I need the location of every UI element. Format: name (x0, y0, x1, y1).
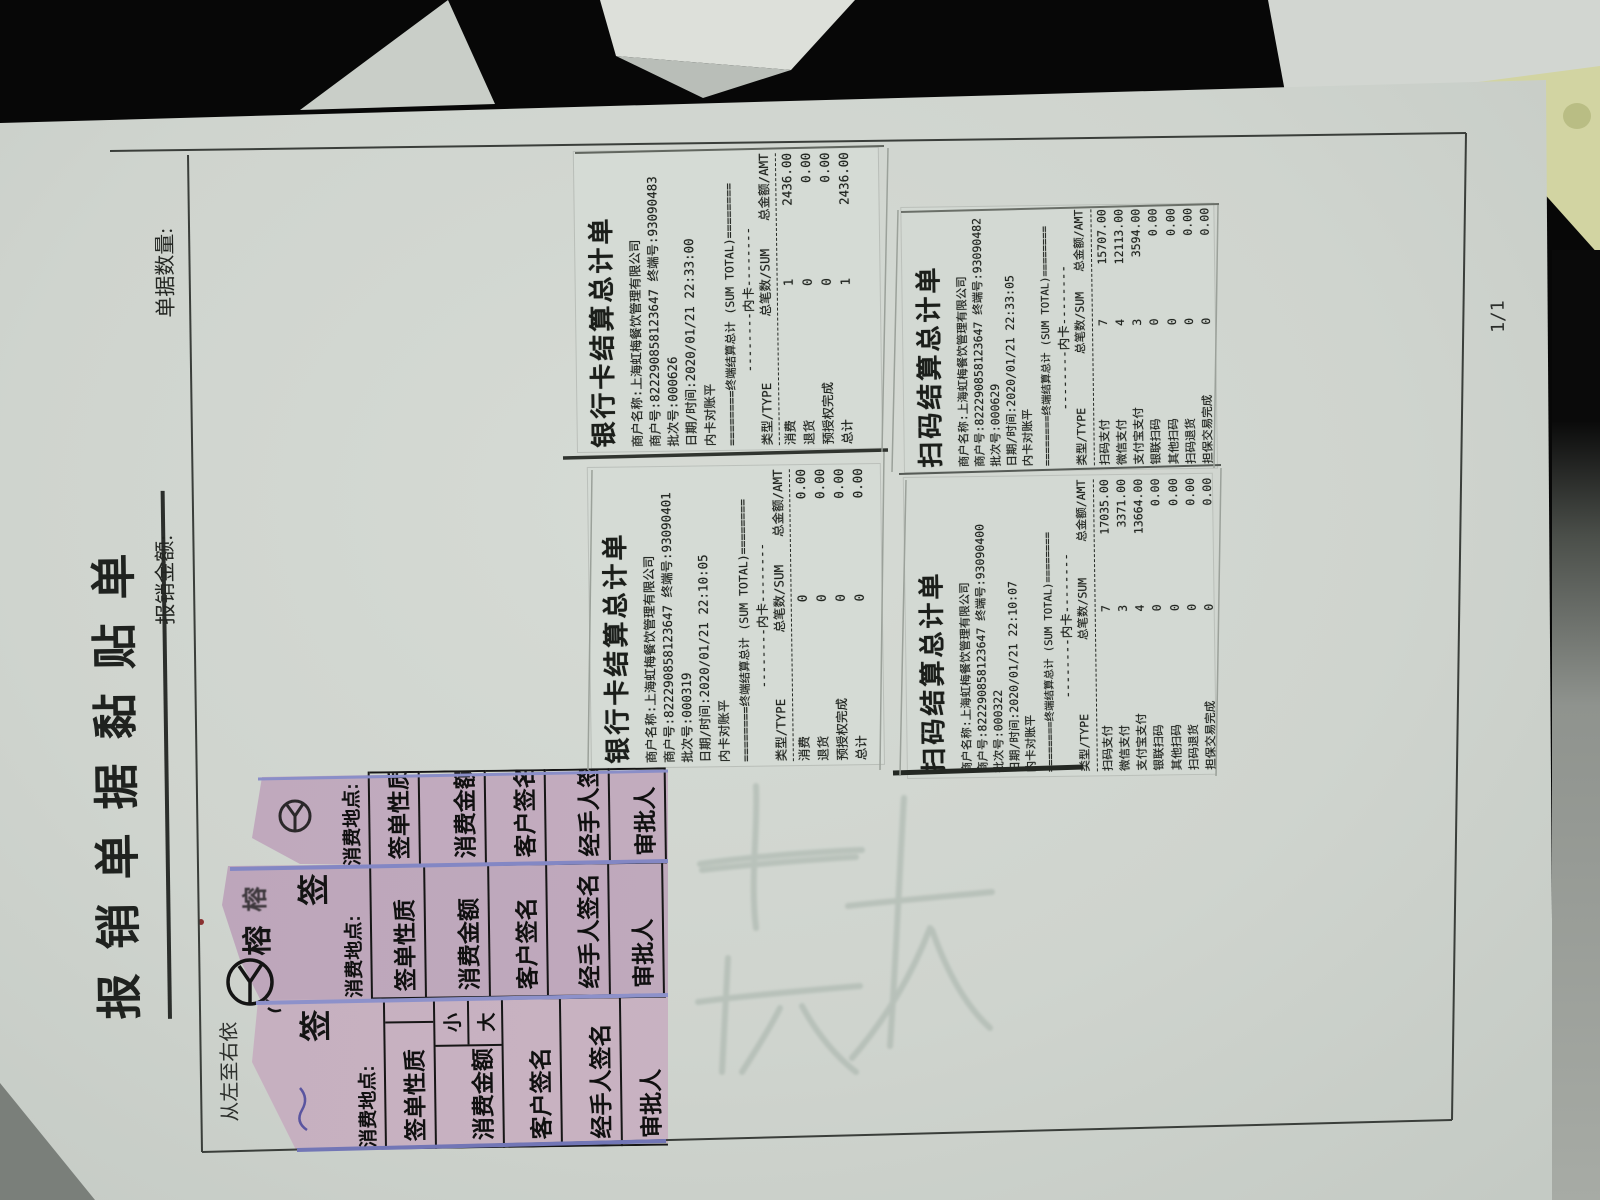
cream-sheet-stain (1563, 103, 1591, 129)
receipt-table-cell: 0.00 (1197, 208, 1215, 289)
receipt-bank-card-2: 银行卡结算总计单 商户名称:上海虹梅餐饮管理有限公司 商户号:822290858… (588, 464, 884, 768)
receipt-table-cell: 担保交易完成 (1201, 644, 1216, 770)
col-type: 类型/TYPE (771, 636, 792, 762)
receipt-table-cell: 3371.00 (1113, 479, 1132, 572)
receipt-table-cell: 0 (850, 561, 870, 635)
receipt-table-cell: 0 (1166, 571, 1184, 645)
receipt-title: 银行卡结算总计单 (594, 471, 635, 763)
pink-slip-table-2: 消费地点: 签单性质 消费金额 客户签名 经手人签名 审批人 (336, 861, 668, 1000)
slip-title-char: 签 (290, 1002, 327, 1042)
col-amount: 总金额/AMT (768, 469, 788, 562)
field-handler-signature: 经手人签名 (579, 998, 621, 1145)
receipt-table-cell: 0.00 (830, 468, 850, 561)
field-handler-signature: 经手人签名 (567, 864, 609, 995)
status-line: 内卡对账平 (697, 154, 719, 446)
receipt-table-cell: 扫码退货 (1181, 354, 1200, 464)
receipt-table-cell: 0.00 (816, 152, 836, 245)
receipt-table-cell: 担保交易完成 (1199, 353, 1217, 463)
receipt-table: 消费00.00退货00.00预授权完成00.00总计00.00 (792, 468, 871, 761)
slip-title-char: 签 (288, 866, 323, 906)
receipt-table-cell: 0 (831, 561, 851, 635)
field-approver: 审批人 (624, 769, 665, 862)
amount-subcells: 小 大 (435, 1000, 502, 1047)
receipt-table-cell: 7 (1097, 572, 1115, 646)
receipt-table-cell: 扫码支付 (1098, 645, 1117, 771)
receipt-table-cell: 2436.00 (778, 153, 798, 246)
slip-fields: 签单性质 消费金额 小 大 客户签名 经手人签名 审批人 (383, 996, 668, 1150)
field-customer-signature: 客户签名 (519, 999, 561, 1146)
pink-slip-table-3: 消费地点: 签单性质 消费金额 小 大 客户签名 经手人签名 审批人 (350, 996, 668, 1150)
receipt-table-cell: 0.00 (1179, 208, 1197, 289)
receipt-table-cell: 总计 (851, 634, 872, 760)
receipt-table-row: 总计00.00 (848, 468, 871, 760)
receipt-table-cell: 微信支付 (1112, 355, 1131, 465)
receipt-table-cell: 0.00 (1145, 208, 1163, 289)
receipt-qr-2: 扫码结算总计单 商户名称:上海虹梅餐饮管理有限公司 商户号:8222908581… (904, 474, 1216, 778)
receipt-table: 扫码支付717035.00微信支付33371.00支付宝支付413664.00银… (1096, 477, 1216, 771)
receipt-table-cell: 13664.00 (1130, 479, 1149, 572)
receipt-table-cell: 微信支付 (1115, 645, 1134, 771)
receipt-table-cell: 退货 (813, 635, 834, 761)
receipt-table-cell: 0.00 (1165, 478, 1184, 571)
receipt-table-cell: 3 (1114, 571, 1132, 645)
receipt-table-cell: 其他扫码 (1164, 354, 1183, 464)
receipt-bank-card-1: 银行卡结算总计单 商户名称:上海虹梅餐饮管理有限公司 商户号:822290858… (574, 148, 882, 452)
col-count: 总笔数/SUM (1072, 290, 1090, 355)
receipt-table-cell: 0 (1198, 289, 1216, 354)
location-label: 消费地点: (338, 866, 367, 998)
receipt-table-cell: 7 (1094, 290, 1112, 355)
receipt-table-cell: 消费 (781, 319, 802, 445)
receipt-table-cell: 0.00 (1147, 478, 1166, 571)
receipt-table-cell: 0.00 (1162, 208, 1180, 289)
receipt-table-cell: 0.00 (1182, 478, 1201, 571)
field-sign-type: 签单性质 (393, 1023, 435, 1148)
receipt-table-cell: 1 (780, 245, 800, 319)
table-header: 类型/TYPE 总笔数/SUM 总金额/AMT (768, 469, 791, 761)
field-amount: 消费金额 (444, 772, 485, 865)
slip-brand-char: 榕 (232, 920, 266, 956)
paste-instruction: 从左至右依 (212, 1010, 241, 1122)
receipt-table-cell: 其他扫码 (1167, 644, 1186, 770)
receipt-table-cell: 消费 (795, 635, 816, 761)
field-approver: 审批人 (621, 863, 663, 994)
receipt-table-cell: 3594.00 (1128, 209, 1146, 290)
blank-subcell (385, 1001, 433, 1024)
receipt-table-cell: 退货 (799, 319, 820, 445)
receipt-table-cell: 17035.00 (1096, 479, 1115, 572)
col-amount: 总金额/AMT (1073, 479, 1092, 572)
col-count: 总笔数/SUM (756, 246, 776, 320)
slip-fields: 签单性质 消费金额 客户签名 经手人签名 审批人 (369, 861, 665, 999)
receipt-title: 扫码结算总计单 (907, 211, 948, 467)
receipt-title: 扫码结算总计单 (910, 481, 951, 773)
table-header: 类型/TYPE 总笔数/SUM 总金额/AMT (754, 153, 777, 445)
amount-label: 报销金额: (148, 465, 180, 625)
field-handler-signature: 经手人签名 (568, 770, 609, 863)
receipt-table-cell: 扫码退货 (1184, 644, 1203, 770)
receipt-table-cell: 支付宝支付 (1132, 645, 1151, 771)
receipt-table-cell: 0.00 (792, 469, 812, 562)
receipt-table-cell: 3 (1129, 290, 1147, 355)
col-count: 总笔数/SUM (1075, 572, 1093, 646)
receipt-table-cell: 扫码支付 (1095, 355, 1114, 465)
count-label: 单据数量: (148, 198, 180, 318)
field-approver: 审批人 (629, 998, 668, 1145)
receipt-table-cell: 0 (817, 245, 837, 319)
receipt-table-cell: 0 (798, 245, 818, 319)
receipt-table-cell: 0 (1183, 570, 1201, 644)
receipt-table-cell: 0 (812, 561, 832, 635)
right-edge-shadow (1552, 250, 1600, 1200)
pink-slip-table-1: 消费地点: 签单性质 消费金额 客户签名 经手人签名 审批人 (335, 767, 668, 868)
receipt-table-cell: 0 (1149, 571, 1167, 645)
table-header: 类型/TYPE 总笔数/SUM 总金额/AMT (1073, 479, 1094, 771)
page-indicator: 1/1 (1487, 285, 1512, 333)
receipt-table-cell: 0 (1146, 289, 1164, 354)
status-line: 内卡对账平 (1019, 480, 1039, 772)
col-amount: 总金额/AMT (1071, 209, 1089, 290)
scanned-reimbursement-sheet: 银行卡结算总计单 商户名称:上海虹梅餐饮管理有限公司 商户号:822290858… (0, 0, 1600, 1200)
receipt-table: 扫码支付715707.00微信支付412113.00支付宝支付33594.00银… (1093, 207, 1217, 465)
receipt-table: 消费12436.00退货00.00预授权完成00.00总计12436.00 (778, 152, 857, 445)
col-type: 类型/TYPE (1073, 355, 1092, 465)
receipt-table-cell: 银联扫码 (1147, 354, 1166, 464)
background-paper-triangle (290, 0, 510, 120)
receipt-table-cell: 4 (1131, 571, 1149, 645)
receipt-table-cell: 0 (1180, 289, 1198, 354)
col-amount: 总金额/AMT (754, 153, 774, 246)
receipt-table-cell: 15707.00 (1093, 209, 1111, 290)
location-label: 消费地点: (337, 772, 365, 866)
receipt-table-cell: 支付宝支付 (1130, 354, 1149, 464)
table-header: 类型/TYPE 总笔数/SUM 总金额/AMT (1071, 209, 1092, 465)
field-sign-type: 签单性质 (378, 773, 419, 866)
field-customer-signature: 客户签名 (504, 771, 545, 864)
receipt-table-cell: 0.00 (811, 469, 831, 562)
status-line: 内卡对账平 (711, 470, 733, 762)
receipt-table-row: 总计12436.00 (834, 152, 857, 444)
receipt-table-cell: 0 (794, 561, 814, 635)
col-type: 类型/TYPE (757, 320, 778, 446)
amount-large-cell: 大 (467, 1000, 502, 1044)
slip-fields: 签单性质 消费金额 客户签名 经手人签名 审批人 (368, 767, 667, 867)
slip-brand-char: 榕 (236, 882, 266, 912)
receipt-table-cell: 0 (1163, 289, 1181, 354)
receipt-table-cell: 银联扫码 (1150, 645, 1169, 771)
receipt-table-cell: 预授权完成 (818, 319, 839, 445)
field-customer-signature: 客户签名 (505, 865, 547, 996)
field-sign-type: 签单性质 (383, 867, 425, 998)
receipt-title: 银行卡结算总计单 (580, 155, 621, 447)
col-count: 总笔数/SUM (770, 562, 790, 636)
field-amount: 消费金额 (462, 1046, 503, 1147)
receipt-table-cell: 2436.00 (834, 152, 854, 245)
receipt-table-cell: 4 (1111, 290, 1129, 355)
amount-small-cell: 小 (435, 1000, 468, 1044)
receipt-table-cell: 0.00 (797, 153, 817, 246)
receipt-table-cell: 0.00 (848, 468, 868, 561)
receipt-qr-1: 扫码结算总计单 商户名称:上海虹梅餐饮管理有限公司 商户号:8222908581… (901, 204, 1217, 472)
receipt-table-cell: 总计 (837, 318, 858, 444)
receipt-table-cell: 预授权完成 (832, 635, 853, 761)
col-type: 类型/TYPE (1076, 646, 1095, 772)
field-amount: 消费金额 (447, 866, 489, 997)
receipt-table-cell: 12113.00 (1110, 209, 1128, 290)
location-label: 消费地点: (352, 1000, 381, 1148)
receipt-table-cell: 1 (836, 245, 856, 319)
status-line: 内卡对账平 (1017, 210, 1037, 466)
